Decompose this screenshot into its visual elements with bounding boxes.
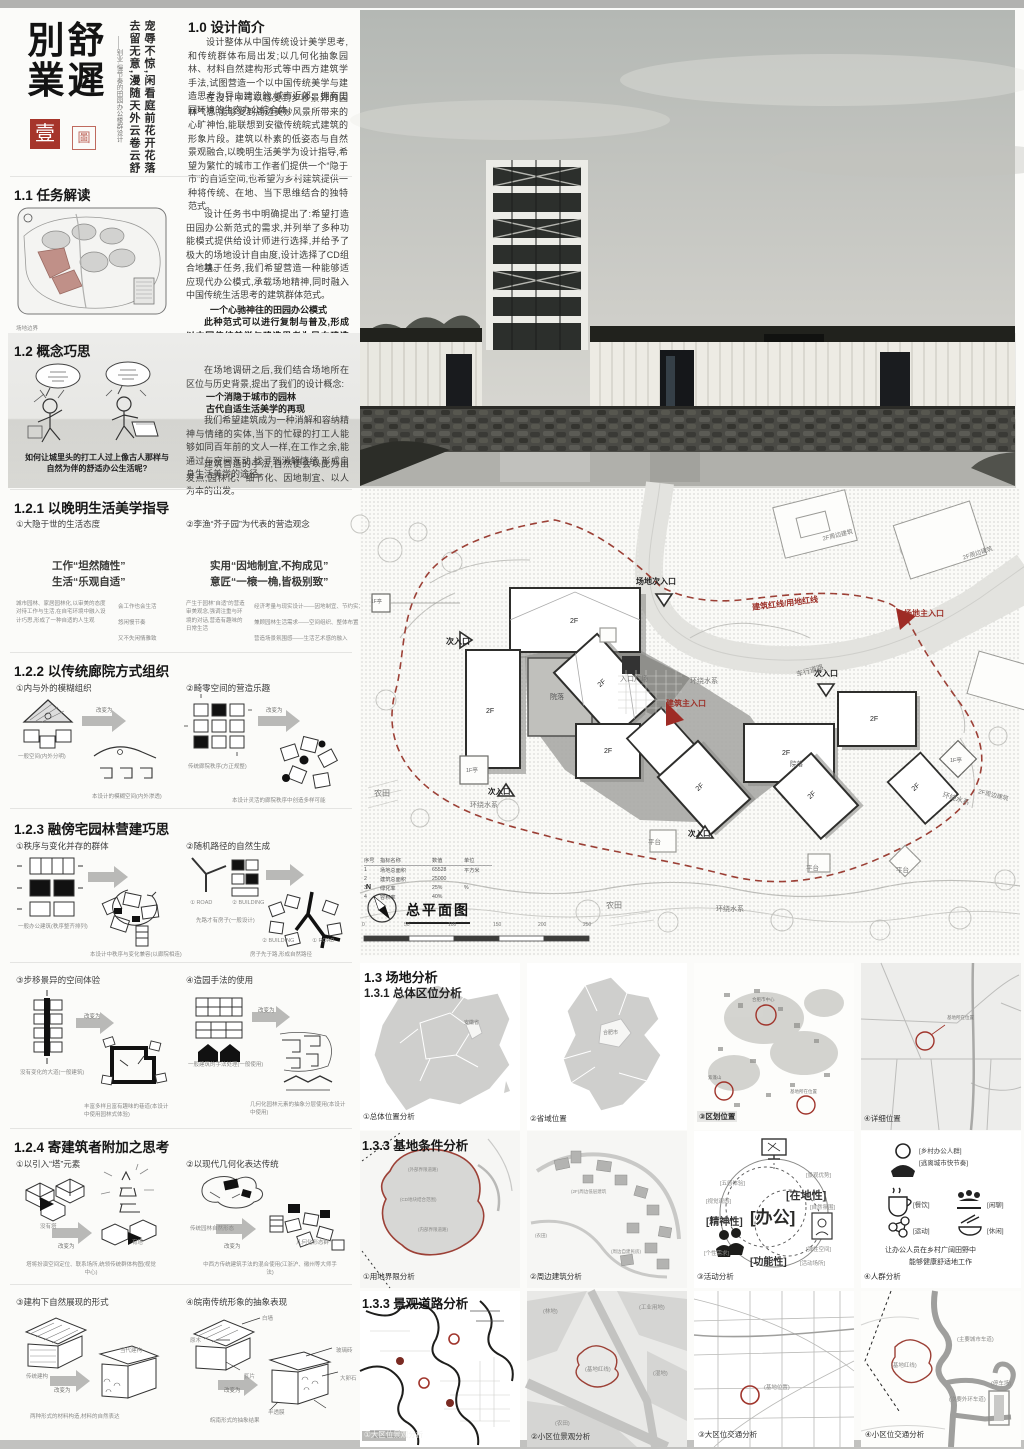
cell xyxy=(464,876,488,883)
s12x-b-label: ④造园手法的使用 xyxy=(186,974,253,986)
s12y-b-label: ④皖南传统形象的抽象表现 xyxy=(186,1296,287,1308)
panel-surrounding-buildings: (2F)周边低层建筑 (周边自建民房) (农田) ②周边建筑分析 xyxy=(527,1131,687,1288)
divider xyxy=(10,176,352,177)
zone-label-1: (外部界限道路) xyxy=(408,1167,438,1173)
s121-b-quote1: 实用“因地制宜,不拘成见” xyxy=(210,558,328,573)
s124-a-diagram xyxy=(16,1170,166,1256)
building-label-2: (周边自建民房) xyxy=(611,1249,641,1255)
s122-a-cap2: 本设计的模糊空间(内外渗透) xyxy=(92,792,162,800)
s12x-a-cap1: 没有变化的大道(一般建筑) xyxy=(20,1068,84,1076)
plan-pav-label-3: 1F亭 xyxy=(950,756,962,764)
task-title: 1.1 任务解读 xyxy=(14,184,91,204)
scale-tick-1: 50 xyxy=(404,922,410,928)
top-scan-band xyxy=(0,0,1024,8)
s124-a-t1: 没有塔 xyxy=(40,1222,57,1230)
s124-b-t2: 几何化形态群 xyxy=(296,1238,329,1246)
s12y-a-diagram xyxy=(16,1310,166,1420)
s123-a-label: ①秩序与变化并存的群体 xyxy=(16,840,109,852)
s121-a-label: ①大隐于世的生活态度 xyxy=(16,518,100,530)
scale-tick-0: 0 xyxy=(362,922,365,928)
cell: 平方米 xyxy=(464,867,488,874)
s122-b-cap1: 传统廊院秩序(方正规整) xyxy=(188,762,247,770)
s12y-b-arrow-label: 改变为 xyxy=(224,1386,241,1394)
user-group-label-2: [逃离城市快节奏] xyxy=(919,1157,968,1167)
plan-title: 总平面图 xyxy=(406,900,470,924)
col-header: 序号 xyxy=(364,857,380,864)
s123-b-bldg-label: ② BUILDING xyxy=(232,900,264,906)
s121-a-note: 城市园林、家居园林化,以审美的态度对待工作与生活,在自宅环境中融入设计巧思,形成… xyxy=(16,600,106,625)
user-item-1: [餐饮] xyxy=(913,1199,930,1209)
panel-caption: ④小区位交通分析 xyxy=(865,1429,924,1440)
plan-deck-label-1: 平台 xyxy=(648,836,661,846)
tagline-2: 去留无意,漫随天外云卷云舒 xyxy=(126,20,142,170)
title-char: 業 xyxy=(26,62,66,102)
s122-b-cap2: 本设计灵活的廊院秩序中创造多样可能 xyxy=(232,796,326,804)
analysis2-header: 1.3.3 基地条件分析 xyxy=(362,1135,468,1154)
s12x-b-arrow-label: 改变为 xyxy=(258,1006,275,1014)
traffic-grid-map xyxy=(694,1291,854,1447)
cell: 65528 xyxy=(432,867,464,874)
cell: 1 xyxy=(364,867,380,874)
s121-a-item3: 又不失闲情雅致 xyxy=(118,634,157,642)
divider xyxy=(10,962,352,963)
plan-site-main-entry-label: 场地主入口 xyxy=(904,608,944,619)
venn-sat-3: [景观优势] xyxy=(806,1171,831,1179)
plan-yard-label-2: 院落 xyxy=(790,758,803,768)
s12y-callout-5: 大卵石 xyxy=(340,1374,357,1382)
s124-b-arrow-label: 改变为 xyxy=(224,1242,241,1250)
table-row: 2 建筑总面积 25000 xyxy=(364,875,492,884)
s121-title: 1.2.1 以晚明生活美学指导 xyxy=(14,497,169,517)
surrounding-buildings-map xyxy=(527,1131,687,1288)
concept-paragraph-3: 建筑营造的手法,自然便会以此为出发点,园林化、细节化、因地制宜、以人为本的出发。 xyxy=(186,458,349,499)
user-item-3: [运动] xyxy=(913,1225,930,1235)
divider xyxy=(10,489,352,490)
s122-a-label: ①内与外的模糊组织 xyxy=(16,682,92,694)
cell: 25000 xyxy=(432,876,464,883)
divider xyxy=(10,808,352,809)
subtitle: ——别业·慢节奏的田园办公楼群设计 xyxy=(113,36,123,166)
s122-b-arrow-label: 改变为 xyxy=(266,706,283,714)
traffic-label-parking: (停车场) xyxy=(991,1379,1011,1387)
panel-caption: ④人群分析 xyxy=(864,1271,901,1282)
plan-sub-entry-b1-label: 次入口 xyxy=(488,786,511,797)
task-emphasis: 一个心驰神往的田园办公模式 xyxy=(210,303,327,316)
cell: 建筑总面积 xyxy=(380,876,432,883)
venn-label-gongnengxing: [功能性] xyxy=(750,1253,787,1268)
intro-paragraph-2: 在设计中可以感受到步移景异的园林气息,能够受到周边美妙风景所带来的心旷神怡,能联… xyxy=(188,92,348,214)
landuse-label-industry: (工业用地) xyxy=(639,1303,665,1311)
gather-icon xyxy=(957,1190,981,1209)
s121-b-quote2: 意匠“一榱一桷,皆极别致” xyxy=(210,574,328,589)
tagline-1: 宠辱不惊,闲看庭前花开花落 xyxy=(141,20,157,170)
s123-b-label: ②随机路径的自然生成 xyxy=(186,840,270,852)
plan-main-entry-label: 建筑主入口 xyxy=(666,698,706,709)
panel-district-map: 合肥市中心 紫蓬山 基地所在位置 ③区划位置 xyxy=(694,963,854,1130)
scale-tick-4: 200 xyxy=(538,922,546,928)
title-column-left: 別 業 xyxy=(26,22,66,102)
panel-traffic-macro: (基地位置) ③大区位交通分析 xyxy=(694,1291,854,1447)
zone-label-2: (CD地块结合范围) xyxy=(400,1197,437,1203)
s12y-a-arrow-label: 改变为 xyxy=(54,1386,71,1394)
traffic-label-main: (主要城市车道) xyxy=(957,1335,994,1343)
s123-b-cap1: 先路才有房子(一般设计) xyxy=(196,916,255,924)
plan-plaza-label: 入口广场 xyxy=(620,674,648,684)
site-position-label: 基地所在位置 xyxy=(947,1015,974,1021)
plan-2f-label-4: 2F xyxy=(604,748,612,755)
panel-landscape-macro: 1.3.3 景观道路分析 ①大区位景观分析 xyxy=(360,1291,520,1447)
s124-a-t2: 有塔 xyxy=(132,1238,143,1246)
poi-label-3: 基地所在位置 xyxy=(790,1089,817,1095)
s12x-a-cap2: 丰富多样且富有趣味的巷道(本设计中使用园林式体验) xyxy=(84,1102,172,1118)
s123-title: 1.2.3 融傍宅园林营建巧思 xyxy=(14,818,169,838)
monitor-icon xyxy=(762,1139,786,1171)
s124-a-arrow-label: 改变为 xyxy=(58,1242,75,1250)
s121-a-quote1: 工作“坦然随性” xyxy=(52,558,126,573)
divider xyxy=(10,1128,352,1129)
traffic-label-redline: (基地红线) xyxy=(891,1361,917,1369)
venn-label-zaidixing: [在地性] xyxy=(786,1187,826,1203)
s12y-callout-6: 半透膜 xyxy=(268,1408,285,1416)
person-icon xyxy=(891,1144,915,1177)
s124-b-label: ②以现代几何化表达传统 xyxy=(186,1158,279,1170)
cell: 2 xyxy=(364,876,380,883)
s12y-a-t2: 当代建构 xyxy=(120,1346,142,1354)
plan-sub-entry-left-label: 次入口 xyxy=(446,636,470,647)
hero-render-photo xyxy=(360,10,1015,486)
s121-b-note: 产生于园林“自适”的营造审美观念,强调注重与环境的对话,营造有趣味的日常生活 xyxy=(186,600,248,633)
north-compass-icon xyxy=(364,890,400,926)
panel-location-china: 安徽省 1.3 场地分析 1.3.1 总体区位分析 ①总体位置分析 xyxy=(360,963,520,1130)
scale-tick-5: 250 xyxy=(583,922,591,928)
user-group-label-1: [乡村办公人群] xyxy=(919,1145,962,1155)
landuse-label-redline: (基地红线) xyxy=(585,1365,611,1373)
venn-sat-5: [个性需求] xyxy=(704,1249,729,1257)
analysis1-subheader: 1.3.1 总体区位分析 xyxy=(364,985,462,1001)
s124-a-cap: 塔将扮演空间定位、联系场所,统领传统群体构图(视觉中心) xyxy=(26,1260,156,1276)
s12y-b-diagram xyxy=(186,1310,346,1420)
panel-boundary-analysis: (外部界限道路) (CD地块结合范围) (内部界限道路) 1.3.3 基地条件分… xyxy=(360,1131,520,1288)
landuse-label-forest: (林地) xyxy=(543,1307,558,1315)
panel-caption: ②小区位景观分析 xyxy=(531,1431,590,1442)
s121-b-item1: 经济考量与现实设计——因地制宜、节约实力 xyxy=(254,602,364,610)
venn-label-jingshenxing: [精神性] xyxy=(706,1213,743,1228)
s12y-callout-1: 白墙 xyxy=(262,1314,273,1322)
plan-2f-label-6: 2F xyxy=(782,750,790,757)
plan-yard-label-1: 院落 xyxy=(550,692,564,702)
person-card-icon xyxy=(812,1213,832,1239)
task-paragraph-2: 基于任务,我们希望营造一种能够适应现代办公模式,承载场地精神,同时融入中国传统生… xyxy=(186,262,349,303)
divider xyxy=(10,1284,352,1285)
panel-caption: ①大区位景观分析 xyxy=(364,1429,423,1440)
city-label: 合肥市 xyxy=(603,1029,618,1036)
zone-label-3: (内部界限道路) xyxy=(418,1227,448,1233)
plan-water-label-3: 环绕水系 xyxy=(470,800,498,810)
landuse-label-wetland: (湿地) xyxy=(653,1369,668,1377)
river-map xyxy=(360,1291,520,1447)
s123-b-cap2: 房子先于路,形成自然路径 xyxy=(250,950,312,958)
panel-traffic-micro: (主要城市车道) (基地红线) (次要外环车道) (停车场) ④小区位交通分析 xyxy=(861,1291,1021,1447)
panel-caption: ②省域位置 xyxy=(530,1113,567,1124)
s121-a-item1: 会工作也会生活 xyxy=(118,602,157,610)
col-header: 数值 xyxy=(432,857,464,864)
traffic-label-secondary: (次要外环车道) xyxy=(949,1395,986,1403)
poi-label-2: 紫蓬山 xyxy=(708,1075,722,1081)
plan-water-label-4: 环绕水系 xyxy=(716,904,744,914)
s121-a-item2: 悠闲慢节奏 xyxy=(118,618,146,626)
plan-farm-label-2: 农田 xyxy=(606,900,622,911)
analysis1-header: 1.3 场地分析 xyxy=(364,967,438,986)
cell: 场地总面积 xyxy=(380,867,432,874)
s122-b-label: ②畸零空间的营造乐趣 xyxy=(186,682,270,694)
s124-a-label: ①以引入“塔”元素 xyxy=(16,1158,80,1170)
plan-water-label-1: 环绕水系 xyxy=(690,676,718,686)
title-column-right: 舒 遲 xyxy=(66,22,106,102)
venn-sat-2: [视觉观感] xyxy=(706,1197,731,1205)
s12x-b-cap1: 一般建筑的手法处理(一般使用) xyxy=(188,1060,263,1068)
s12x-a-arrow-label: 改变为 xyxy=(84,1012,101,1020)
cell: 25% xyxy=(432,885,464,892)
scale-tick-2: 100 xyxy=(448,922,456,928)
panel-location-province: 合肥市 ②省域位置 xyxy=(527,963,687,1130)
plan-pav-label-2: 1F亭 xyxy=(466,766,478,774)
boundary-map xyxy=(360,1131,520,1288)
north-label: N xyxy=(366,884,371,891)
panel-caption: ②周边建筑分析 xyxy=(530,1271,582,1282)
col-header: 单位 xyxy=(464,857,488,864)
venn-sat-6: [弹性空间] xyxy=(806,1245,831,1253)
traffic-site-label: (基地位置) xyxy=(764,1383,790,1391)
s12y-callout-3: 瓦片 xyxy=(244,1372,255,1380)
panel-caption: ④详细位置 xyxy=(864,1113,901,1124)
building-label-1: (2F)周边低层建筑 xyxy=(571,1189,606,1195)
s121-b-item3: 营造场景氛围感——生活艺术感的融入 xyxy=(254,634,348,642)
s124-b-cap: 中西方传统建筑手法的混合使用(江浙沪、徽州等大师手法) xyxy=(200,1260,340,1276)
s122-a-cap1: 一般空间(内外分明) xyxy=(18,752,66,760)
s12y-a-t1: 传统建构 xyxy=(26,1372,48,1380)
s122-a-arrow-label: 改变为 xyxy=(96,706,113,714)
s12y-a-label: ③建构下自然展现的形式 xyxy=(16,1296,109,1308)
s123-b-road-label: ① ROAD xyxy=(190,900,212,906)
task-site-sketch xyxy=(16,206,168,318)
plan-farm-label-1: 农田 xyxy=(374,788,390,799)
s123-a-cap1: 一般办公建筑(秩序整齐排列) xyxy=(18,922,88,930)
user-text-1: 让办公人员在乡村广阔田野中 xyxy=(885,1245,976,1255)
district-map xyxy=(694,963,854,1130)
red-seal: 壹 xyxy=(30,119,60,149)
s121-b-label: ②李渔“芥子园”为代表的营造观念 xyxy=(186,518,310,530)
plan-deck-label-2: 平台 xyxy=(806,862,819,872)
plan-pav-label-1: 1F亭 xyxy=(371,598,382,605)
road-hint-label: (农田) xyxy=(535,1233,547,1239)
plan-2f-label-2: 2F xyxy=(486,708,494,715)
s12y-a-cap: 两种形式的材料构造,材料的自然表达 xyxy=(30,1412,120,1420)
s124-title: 1.2.4 寄建筑者附加之思考 xyxy=(14,1136,169,1156)
venn-sat-7: [活动场所] xyxy=(800,1259,825,1267)
outline-seal: 圖 xyxy=(72,126,96,150)
panel-activity-analysis: [办公] [在地性] [精神性] [功能性] [五感体验] [视觉观感] [景观… xyxy=(694,1131,854,1288)
venn-center-label: [办公] xyxy=(750,1203,795,1228)
s123-b-road-label2: ① ROAD xyxy=(312,938,334,944)
s122-title: 1.2.2 以传统廊院方式组织 xyxy=(14,660,169,680)
panel-caption: ③区划位置 xyxy=(697,1111,737,1122)
s12y-callout-2: 原木 xyxy=(190,1336,201,1344)
analysis3-header: 1.3.3 景观道路分析 xyxy=(362,1293,468,1312)
anhui-map xyxy=(527,963,687,1130)
task-legend-1: 场地边界 xyxy=(16,324,38,332)
s12y-callout-4: 玻璃砖 xyxy=(336,1346,353,1354)
user-item-2: [闲聊] xyxy=(987,1199,1004,1209)
detail-road-map xyxy=(861,963,1021,1130)
panel-caption: ①总体位置分析 xyxy=(363,1111,415,1122)
panel-landscape-micro: (林地) (工业用地) (湿地) (基地红线) (农田) ②小区位景观分析 xyxy=(527,1291,687,1447)
s12y-b-cap: 皖南形式的抽象结果 xyxy=(210,1416,260,1424)
plan-2f-label-1: 2F xyxy=(570,618,578,625)
province-label: 安徽省 xyxy=(464,1019,479,1026)
plan-deck-label-3: 平台 xyxy=(896,864,909,874)
title-char: 舒 xyxy=(66,22,106,62)
divider xyxy=(10,652,352,653)
s122-a-diagram xyxy=(16,694,166,794)
panel-caption: ③大区位交通分析 xyxy=(698,1429,757,1440)
plan-site-sub-entry-label: 场地次入口 xyxy=(636,576,676,587)
s12x-a-label: ③步移景异的空间体验 xyxy=(16,974,100,986)
user-item-4: [休闲] xyxy=(987,1225,1004,1235)
panel-caption: ③活动分析 xyxy=(697,1271,734,1282)
intro-title: 1.0 设计简介 xyxy=(188,16,265,36)
s123-a-cap2: 本设计中秩序与变化兼容(以廊院相连) xyxy=(90,950,182,958)
s121-b-item2: 兼顾园林生活需求——空间组织、整体布置 xyxy=(254,618,359,626)
venn-sat-1: [五感体验] xyxy=(720,1179,745,1187)
bowl-icon xyxy=(959,1215,981,1235)
cell: % xyxy=(464,885,488,892)
s124-b-t1: 传统园林自然形态 xyxy=(190,1224,234,1232)
poi-label-1: 合肥市中心 xyxy=(752,997,775,1003)
title-char: 遲 xyxy=(66,62,106,102)
table-header-row: 序号 指标名称 数值 单位 xyxy=(364,856,492,866)
concept-sketch xyxy=(20,360,170,450)
traffic-local-map xyxy=(861,1291,1021,1447)
coffee-icon xyxy=(889,1188,911,1216)
scale-bar xyxy=(364,930,600,944)
s123-a-diagram xyxy=(16,852,166,952)
plan-2f-label-8: 2F xyxy=(870,716,878,723)
panel-user-analysis: [乡村办公人群] [逃离城市快节奏] [餐饮] [闲聊] [运动] [休闲] 让… xyxy=(861,1131,1021,1288)
title-char: 別 xyxy=(26,22,66,62)
col-header: 指标名称 xyxy=(380,857,432,864)
s12x-a-diagram xyxy=(16,990,166,1100)
scale-tick-3: 150 xyxy=(493,922,501,928)
plan-sub-entry-b2-label: 次入口 xyxy=(688,828,711,839)
user-text-2: 能够健康舒适地工作 xyxy=(909,1257,972,1267)
concept-paragraph-1: 在场地调研之后,我们结合场地所在区位与历史背景,提出了我们的设计概念: xyxy=(186,364,349,391)
s12x-b-cap2: 几何化园林元素的抽象分层使用(本设计中使用) xyxy=(250,1100,346,1116)
table-row: 1 场地总面积 65528 平方米 xyxy=(364,866,492,875)
landuse-label-farm: (农田) xyxy=(555,1419,570,1427)
panel-caption: ①用地界限分析 xyxy=(363,1271,415,1282)
s121-a-quote2: 生活“乐观自适” xyxy=(52,574,126,589)
venn-sat-4: [自然氛围] xyxy=(810,1203,835,1211)
panel-detail-map: 基地所在位置 ④详细位置 xyxy=(861,963,1021,1130)
s123-b-bldg-label2: ② BUILDING xyxy=(262,938,294,944)
molecule-icon xyxy=(889,1217,909,1237)
presentation-board: 別 業 舒 遲 宠辱不惊,闲看庭前花开花落 去留无意,漫随天外云卷云舒 ——别业… xyxy=(0,0,1024,1449)
concept-title: 1.2 概念巧思 xyxy=(14,340,91,360)
concept-sketch-caption: 如何让城里头的打工人过上像古人那样与自然为伴的舒适办公生活呢? xyxy=(22,452,172,474)
